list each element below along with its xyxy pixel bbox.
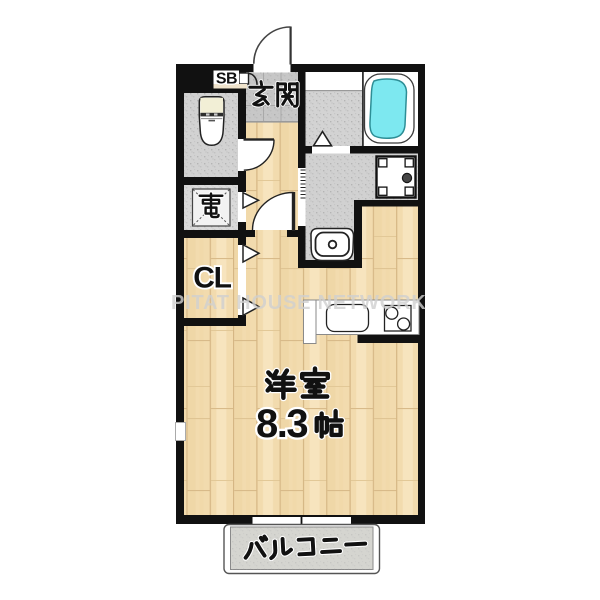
svg-text:CL: CL bbox=[193, 262, 231, 295]
svg-text:PITAT HOUSE NETWORK: PITAT HOUSE NETWORK bbox=[171, 292, 427, 314]
svg-text:8.3: 8.3 bbox=[256, 402, 307, 446]
svg-text:SB: SB bbox=[216, 71, 237, 88]
